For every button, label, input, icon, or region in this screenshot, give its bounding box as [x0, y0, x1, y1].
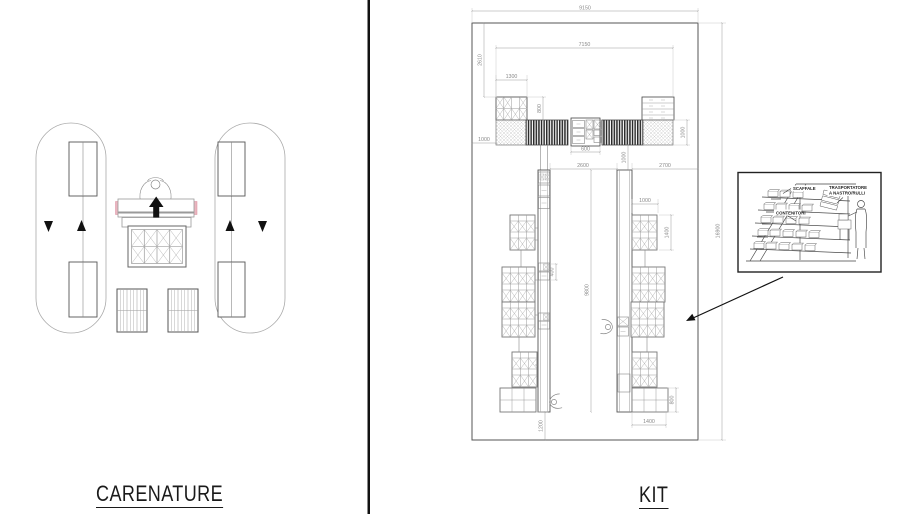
empty-pallet	[168, 289, 198, 332]
kit-detail-inset: SCAFFALE TRASPORTATORE A NASTRO/RULLI CO…	[738, 173, 881, 273]
kit-plan: 9150 16900 7150 2610 1300 800 1000 1000 …	[472, 6, 726, 441]
pallet	[502, 267, 535, 302]
kit-label: KIT	[639, 484, 668, 509]
dim-left-margin: 1000	[478, 137, 490, 143]
central-workstation	[116, 178, 199, 332]
dim-pallet-width: 1000	[639, 198, 651, 204]
center-station	[571, 118, 601, 146]
conveyor-right	[602, 120, 643, 145]
right-conveyor-lane	[617, 170, 632, 412]
technical-drawing: 9150 16900 7150 2610 1300 800 1000 1000 …	[0, 0, 900, 514]
pallet	[632, 388, 668, 412]
dim-top-left-height: 2610	[478, 54, 484, 66]
pallet	[512, 352, 537, 387]
inset-label-contenitori: CONTENITORI	[776, 211, 806, 216]
crate-stack	[128, 226, 186, 267]
carenature-diagram	[36, 123, 285, 333]
pallet	[632, 215, 657, 250]
dim-left-block-width: 1300	[506, 74, 518, 80]
dim-pallet-depth: 1400	[665, 227, 671, 239]
flow-direction-arrow-up	[77, 220, 86, 231]
pallet	[632, 267, 665, 302]
dim-left-block-depth: 800	[537, 104, 543, 113]
carenature-label: CARENATURE	[96, 483, 223, 508]
dim-end-pallet-width: 1400	[643, 419, 655, 425]
flow-direction-arrow-down	[258, 221, 267, 232]
hatched-area-right	[643, 120, 673, 145]
panel-divider	[368, 0, 371, 514]
dim-band-to-lane-gap: 1000	[622, 152, 628, 164]
dim-right-aisle-width: 2700	[659, 163, 671, 169]
conveyor-left	[526, 120, 568, 145]
empty-pallet	[117, 289, 147, 332]
dim-center-station-width: 600	[581, 147, 590, 153]
dim-inner-width: 7150	[579, 42, 591, 48]
shelf-block	[642, 97, 674, 120]
dim-overall-width: 9150	[579, 6, 591, 12]
pallet	[500, 388, 536, 412]
dim-left-aisle-width: 2600	[577, 163, 589, 169]
inset-label-scaffale: SCAFFALE	[793, 186, 816, 191]
dim-bottom-margin: 1200	[539, 420, 545, 432]
hatched-area-left	[496, 120, 526, 145]
pallet	[632, 352, 657, 387]
left-conveyor-lane	[538, 145, 550, 412]
inset-pointer-arrow	[686, 277, 783, 321]
pallet	[631, 302, 664, 337]
pallet	[502, 302, 535, 337]
flow-direction-arrow-down	[44, 221, 53, 232]
dim-band-depth-right: 1000	[681, 127, 687, 139]
dim-lane-length: 9800	[585, 284, 591, 296]
dim-end-pallet-depth: 800	[670, 396, 676, 405]
inset-label-trasportatore-2: A NASTRO/RULLI	[829, 191, 865, 196]
flow-direction-arrow-up	[226, 220, 235, 231]
pallet	[510, 215, 535, 250]
right-conveyor-loop	[215, 123, 285, 333]
dim-overall-height: 16900	[716, 224, 722, 239]
inset-label-trasportatore-1: TRASPORTATORE	[829, 185, 867, 190]
left-conveyor-loop	[36, 123, 106, 333]
dim-station-depth: 400	[550, 268, 556, 277]
